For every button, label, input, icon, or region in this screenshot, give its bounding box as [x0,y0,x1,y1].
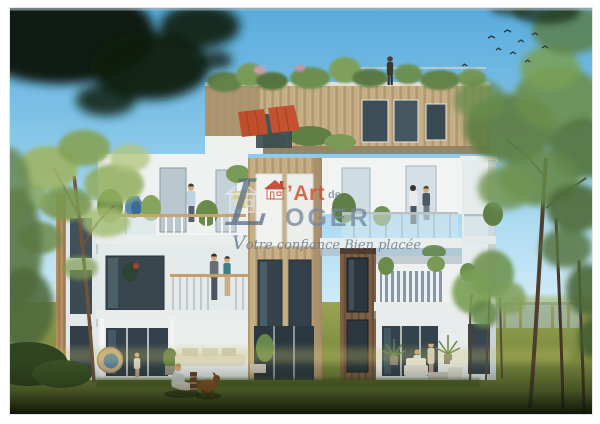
scan-edge [10,8,592,11]
foreground-shadow [10,360,592,414]
third-floor-balcony [320,158,464,260]
architectural-rendering: L ’Art de OGER Votre confiance Bien plac… [10,8,592,414]
scanned-photo-page: L ’Art de OGER Votre confiance Bien plac… [0,0,600,424]
second-floor-balcony [374,256,466,319]
scene-svg [10,8,592,414]
